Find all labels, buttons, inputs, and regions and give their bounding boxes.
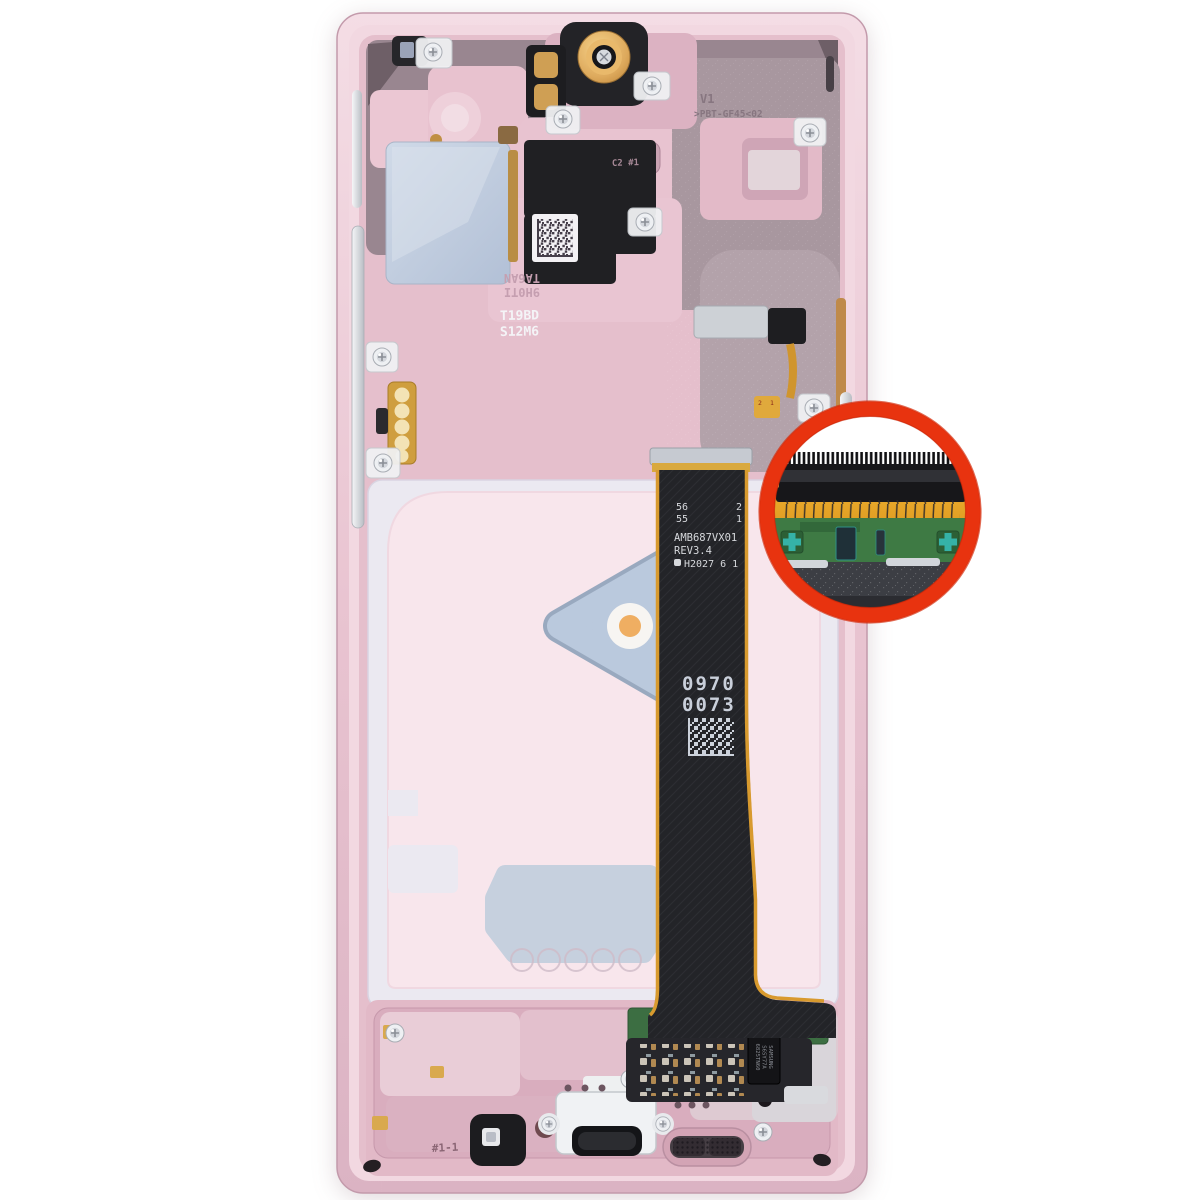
screw [636,213,654,231]
phone-assembly-illustration: V1 >PBT-GF45<02 C2 #1 T19BD S12M6 9H0TI … [0,0,1200,1200]
touch-ic-chip: SAMSUNG S6SY77A 6825TN60 [748,1030,780,1084]
qr-sticker [532,214,578,262]
display-back-panel [368,480,838,1008]
callout-test-pad [937,531,959,553]
callout-component [836,527,856,560]
flex-pin-left-1: 56 [676,502,688,513]
product-photo: V1 >PBT-GF45<02 C2 #1 T19BD S12M6 9H0TI … [0,0,1200,1200]
sub-flex-pin2: 1 [770,399,774,407]
screw [542,1117,556,1131]
flex-datamatrix [688,718,734,756]
callout-test-pad [781,531,803,553]
adhesive-cutout [388,790,418,816]
flex-serial-line1: 0970 [682,673,736,695]
flex-pin-left-2: 55 [676,514,688,525]
camera-hole-center [619,615,641,637]
material-stamp-line1: V1 [700,92,714,106]
flex-date-code: H2027 6 1 [684,559,738,570]
flex-serial-block: 0970 0073 [682,673,736,756]
chip-label-line2: S6SY77A [761,1045,767,1069]
flex-model: AMB687VX01 [674,532,737,544]
screw [374,454,392,472]
thermal-pad [386,126,518,284]
screw [801,124,819,142]
material-stamp-line2: >PBT-GF45<02 [694,109,763,120]
bottom-stamp: #1-1 [431,1141,459,1155]
faint-sticker [748,150,800,190]
flex-serial-line2: 0073 [682,694,736,716]
flex-pin-right-1: 2 [736,502,742,513]
mold-stamp-line1: T19BD [500,308,540,324]
adhesive-cutout [388,845,458,893]
sub-flex-ribbon [790,344,793,398]
svg-text:TA6AN: TA6AN [504,271,540,285]
callout-board-connector [776,464,966,502]
rotated-mold-stamp: 9H0TI TA6AN [504,271,540,299]
flex-revision: REV3.4 [674,545,712,557]
copper-strip [508,150,518,262]
screw [373,348,391,366]
coil-pad-marking [494,874,662,971]
flex-pin-right-2: 1 [736,514,742,525]
sub-flex-connector [768,308,806,344]
loudspeaker-grille [663,1128,751,1166]
callout-slot [886,558,940,566]
screw [656,1117,670,1131]
screw [643,77,661,95]
side-key-rail [352,90,362,208]
flex-top-connector [650,448,752,465]
svg-text:9H0TI: 9H0TI [504,285,540,299]
sub-flex-pin1: 2 [758,399,762,407]
mold-stamp-line2: S12M6 [500,324,540,340]
screw [386,1024,404,1042]
position-stamp: C2 #1 [612,158,639,169]
antenna-rod-left [352,226,364,528]
screw [754,1123,772,1141]
screw [554,110,572,128]
callout-component [876,530,885,555]
chip-label-line3: 6825TN60 [754,1044,760,1071]
chip-label-line1: SAMSUNG [767,1045,773,1069]
screw [424,43,442,61]
phone-frame-assembly: V1 >PBT-GF45<02 C2 #1 T19BD S12M6 9H0TI … [337,13,867,1193]
logo-mark [674,559,681,566]
